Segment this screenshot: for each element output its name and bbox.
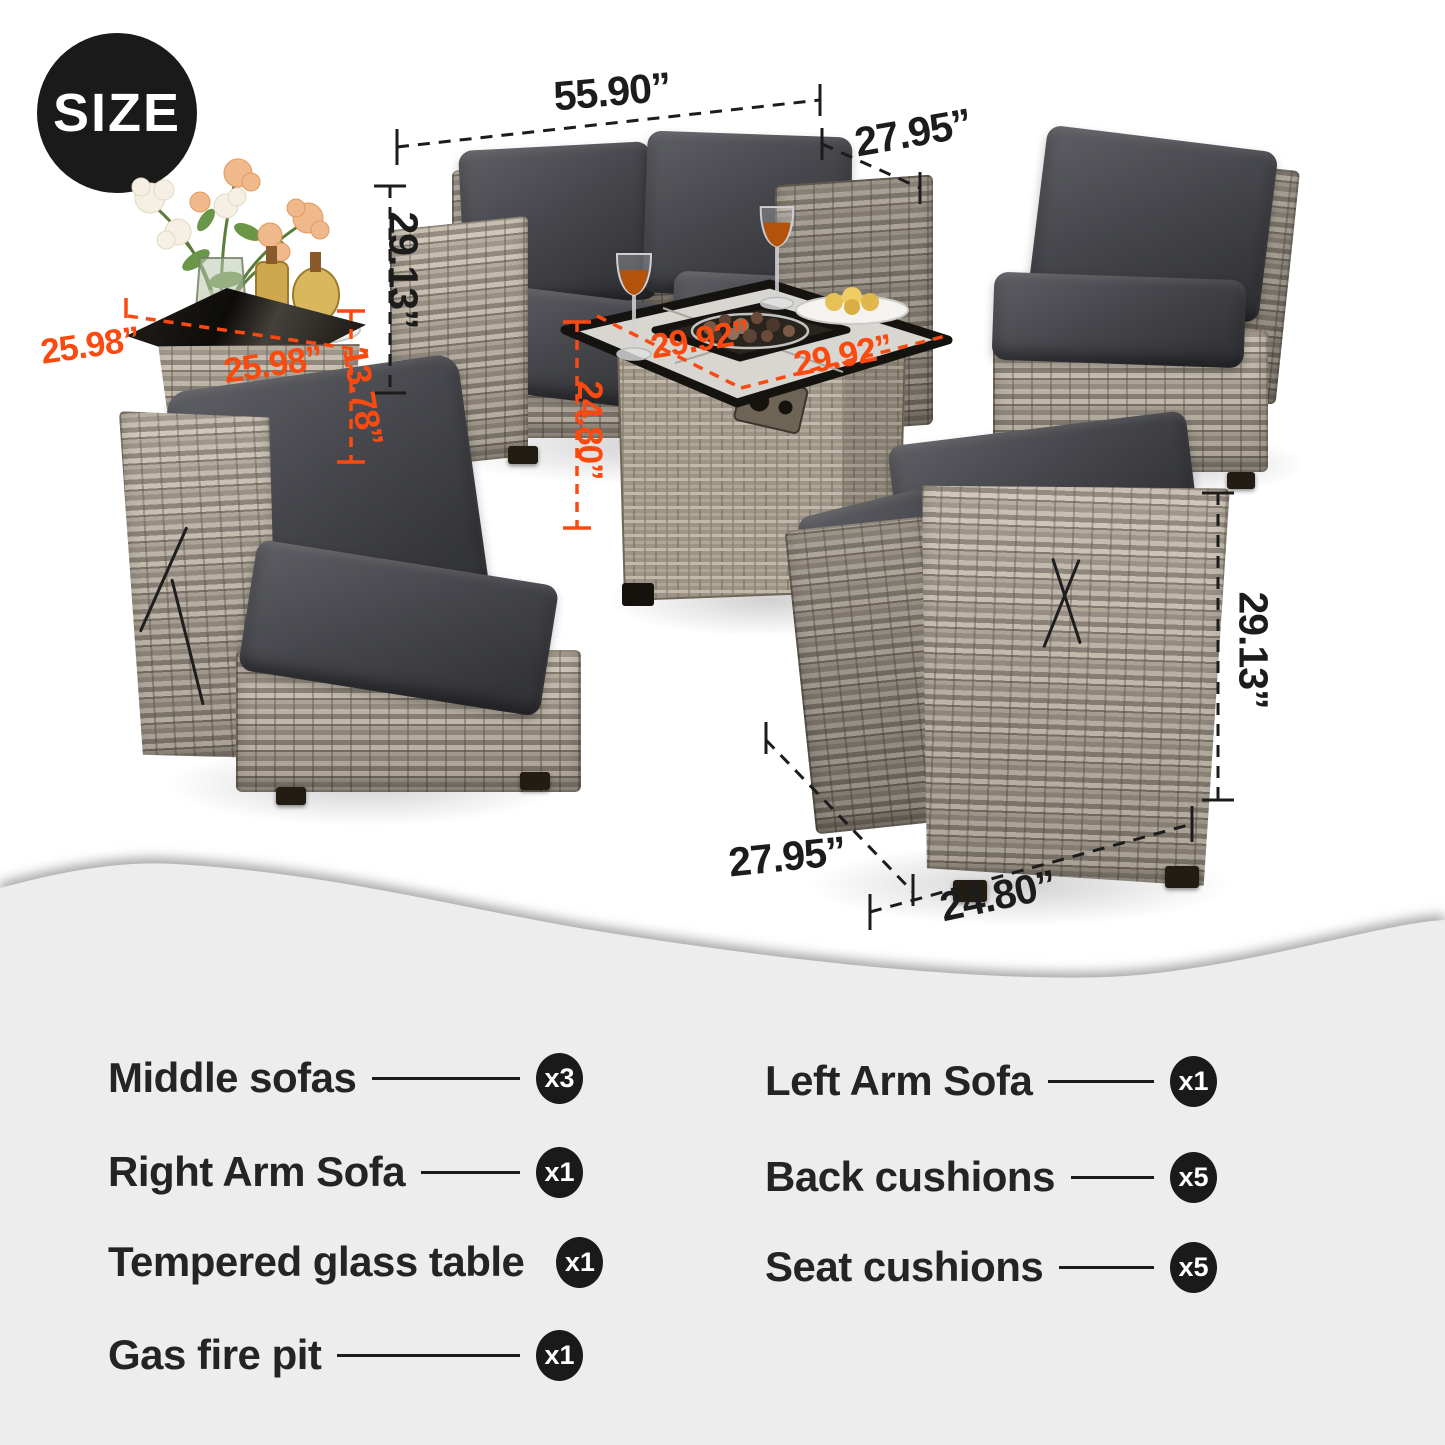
list-item-tempered-glass-table: Tempered glass table x1: [108, 1231, 583, 1293]
corner-chair-left-photo: [128, 372, 568, 810]
list-item-seat-cushions: Seat cushions x5: [765, 1236, 1217, 1298]
leader-line: [421, 1171, 520, 1174]
dim-label-fire-table-height: 24.80”: [569, 380, 609, 479]
part-label: Back cushions: [765, 1153, 1055, 1201]
dim-label-loveseat-depth: 27.95”: [851, 100, 974, 167]
list-item-gas-fire-pit: Gas fire pit x1: [108, 1324, 583, 1386]
part-label: Left Arm Sofa: [765, 1057, 1032, 1105]
count-badge: x1: [556, 1237, 603, 1288]
chair-back-panel: [908, 478, 1230, 887]
dim-label-loveseat-width: 55.90”: [552, 63, 673, 120]
part-label: Middle sofas: [108, 1054, 356, 1102]
part-label: Tempered glass table: [108, 1238, 524, 1286]
part-label: Gas fire pit: [108, 1331, 321, 1379]
part-label: Seat cushions: [765, 1243, 1043, 1291]
leader-line: [337, 1354, 520, 1357]
list-item-left-arm-sofa: Left Arm Sofa x1: [765, 1050, 1217, 1112]
foot: [1165, 866, 1199, 888]
size-badge-label: SIZE: [53, 82, 181, 144]
count-badge: x3: [536, 1053, 583, 1104]
dim-label-chair-height: 29.13”: [1230, 591, 1277, 708]
chips-plate: [792, 280, 912, 326]
list-item-right-arm-sofa: Right Arm Sofa x1: [108, 1141, 583, 1203]
list-item-back-cushions: Back cushions x5: [765, 1146, 1217, 1208]
count-badge: x1: [1170, 1056, 1217, 1107]
list-item-middle-sofas: Middle sofas x3: [108, 1047, 583, 1109]
seat-cushion: [992, 272, 1247, 369]
count-badge: x5: [1170, 1152, 1217, 1203]
leader-line: [1059, 1266, 1154, 1269]
leader-line: [1071, 1176, 1154, 1179]
dim-label-loveseat-height: 29.13”: [380, 211, 427, 328]
foot: [276, 787, 306, 805]
part-label: Right Arm Sofa: [108, 1148, 405, 1196]
count-badge: x1: [536, 1147, 583, 1198]
leader-line: [1048, 1080, 1154, 1083]
foot: [520, 772, 550, 790]
count-badge: x5: [1170, 1242, 1217, 1293]
leader-line: [372, 1077, 520, 1080]
count-badge: x1: [536, 1330, 583, 1381]
